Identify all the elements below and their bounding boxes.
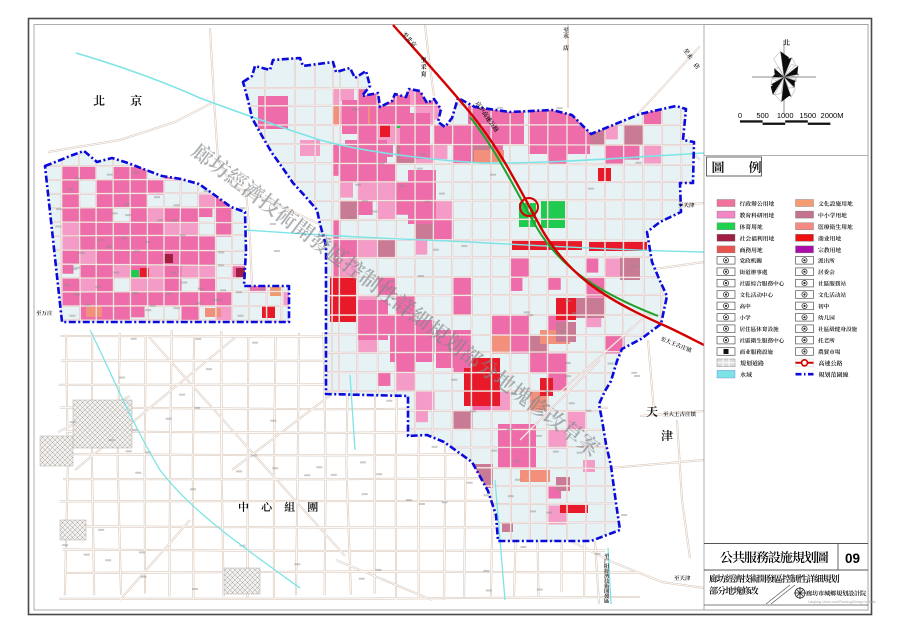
- svg-text:1500: 1500: [799, 111, 816, 120]
- svg-text:09: 09: [845, 551, 860, 566]
- svg-text:1000: 1000: [777, 111, 794, 120]
- svg-text:500: 500: [756, 111, 769, 120]
- svg-text:Langfang Urban-rural Planning&: Langfang Urban-rural Planning&Design Ins…: [808, 600, 876, 604]
- svg-text:2000M: 2000M: [821, 111, 844, 120]
- svg-text:0: 0: [738, 111, 742, 120]
